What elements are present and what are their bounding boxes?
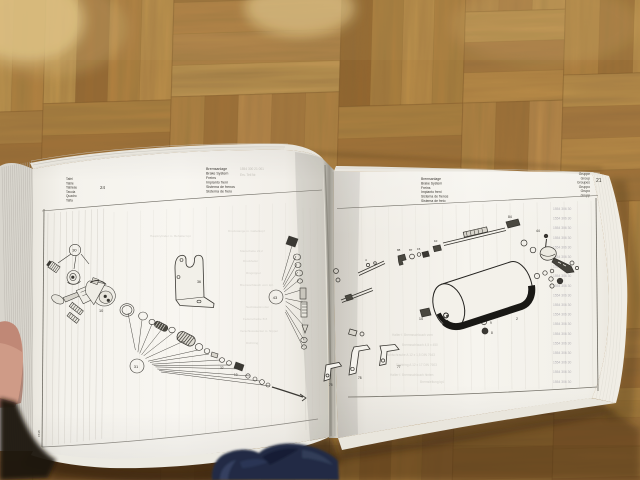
svg-text:Sistema de freio: Sistema de freio: [206, 190, 232, 194]
svg-text:Impianto freni: Impianto freni: [421, 190, 442, 194]
svg-text:Tafla: Tafla: [66, 199, 73, 203]
svg-text:2: 2: [516, 317, 518, 321]
svg-text:Sechskantmutter: Sechskantmutter: [246, 305, 269, 309]
svg-text:31: 31: [134, 364, 139, 369]
svg-text:1538: 1538: [37, 430, 41, 437]
svg-text:Bremsschlauch 4,5 x 450: Bremsschlauch 4,5 x 450: [402, 343, 438, 347]
svg-text:Grupp: Grupp: [581, 194, 591, 198]
svg-text:1554 306 30: 1554 306 30: [553, 332, 572, 336]
svg-text:21: 21: [596, 178, 602, 184]
svg-text:1554 306 30: 1554 306 30: [553, 207, 572, 211]
svg-text:1554 306 30: 1554 306 30: [553, 236, 572, 240]
svg-text:1554 306 30: 1554 306 30: [553, 380, 572, 384]
svg-text:Hohlschraube A 12 x 1,5 DIN 76: Hohlschraube A 12 x 1,5 DIN 7643: [386, 353, 435, 357]
svg-text:Ers. Teil Nr.: Ers. Teil Nr.: [240, 173, 256, 177]
svg-text:1554 306 30: 1554 306 30: [553, 217, 572, 221]
svg-text:Druckfeder: Druckfeder: [243, 259, 258, 263]
svg-text:1554 300 21 001: 1554 300 21 001: [240, 167, 264, 171]
svg-text:43: 43: [273, 295, 278, 300]
svg-text:Freins: Freins: [206, 176, 216, 180]
svg-text:1554 306 30: 1554 306 30: [553, 303, 572, 307]
svg-text:10: 10: [434, 239, 438, 243]
svg-text:1554 306 30: 1554 306 30: [553, 322, 572, 326]
svg-text:10: 10: [99, 309, 103, 313]
svg-text:Halter f. Bremsschlauch vorn: Halter f. Bremsschlauch vorn: [392, 333, 433, 337]
svg-text:Brake System: Brake System: [206, 172, 228, 176]
svg-text:78: 78: [358, 376, 362, 380]
svg-text:Brake System: Brake System: [421, 181, 442, 185]
svg-text:77: 77: [397, 365, 401, 369]
svg-text:Bremsanlage: Bremsanlage: [206, 167, 227, 171]
svg-text:87: 87: [409, 248, 413, 252]
svg-text:8: 8: [491, 331, 493, 335]
svg-text:Verschlussdeckel m. Nippel: Verschlussdeckel m. Nippel: [240, 329, 278, 333]
svg-text:1554 306 30: 1554 306 30: [553, 370, 572, 374]
svg-text:Manschette 22,2: Manschette 22,2: [240, 249, 263, 253]
svg-text:75: 75: [329, 383, 333, 387]
svg-text:15: 15: [417, 247, 421, 251]
svg-text:Bremsleitung kpl.: Bremsleitung kpl.: [420, 380, 445, 384]
svg-text:Sistema de frenos: Sistema de frenos: [206, 185, 235, 189]
svg-text:Dichtring: Dichtring: [246, 341, 258, 345]
svg-text:Druckstange m. Gabelkopf: Druckstange m. Gabelkopf: [228, 229, 265, 233]
svg-text:30: 30: [72, 248, 77, 253]
svg-text:1554 306 30: 1554 306 30: [553, 351, 572, 355]
svg-text:9: 9: [490, 321, 492, 325]
svg-text:Ringnippel: Ringnippel: [246, 271, 261, 275]
svg-text:1554 306 30: 1554 306 30: [553, 245, 572, 249]
svg-text:Sistema de freio: Sistema de freio: [421, 199, 446, 203]
svg-text:24: 24: [100, 185, 106, 190]
svg-text:1554 306 30: 1554 306 30: [553, 293, 572, 297]
svg-text:1554 306 30: 1554 306 30: [553, 284, 572, 288]
svg-text:Federscheibe B 8: Federscheibe B 8: [243, 317, 268, 321]
svg-text:84: 84: [508, 215, 512, 219]
svg-text:36: 36: [197, 280, 201, 284]
svg-text:1554 306 30: 1554 306 30: [553, 274, 572, 278]
svg-text:32: 32: [220, 366, 224, 370]
svg-text:Halter f. Bremsschlauch hinten: Halter f. Bremsschlauch hinten: [390, 373, 434, 377]
svg-text:14: 14: [419, 317, 423, 321]
svg-text:1554 306 30: 1554 306 30: [553, 226, 572, 230]
svg-text:1554 306 30: 1554 306 30: [553, 341, 572, 345]
svg-text:88: 88: [397, 248, 401, 252]
svg-text:Dichtring A 12 x 17 DIN 7603: Dichtring A 12 x 17 DIN 7603: [396, 363, 437, 367]
svg-text:Bremsanlage: Bremsanlage: [421, 177, 441, 181]
svg-text:Hauptzylinder m. Behalter kpl.: Hauptzylinder m. Behalter kpl.: [150, 234, 191, 238]
svg-text:44: 44: [536, 229, 540, 233]
svg-text:Impianto freni: Impianto freni: [206, 181, 228, 185]
svg-text:1554 306 30: 1554 306 30: [553, 361, 572, 365]
svg-text:Bremsschlauch vorn kpl.: Bremsschlauch vorn kpl.: [240, 283, 274, 287]
svg-text:Sistema de frenos: Sistema de frenos: [421, 195, 449, 199]
svg-text:Freins: Freins: [421, 186, 431, 190]
svg-text:1554 306 30: 1554 306 30: [553, 313, 572, 317]
